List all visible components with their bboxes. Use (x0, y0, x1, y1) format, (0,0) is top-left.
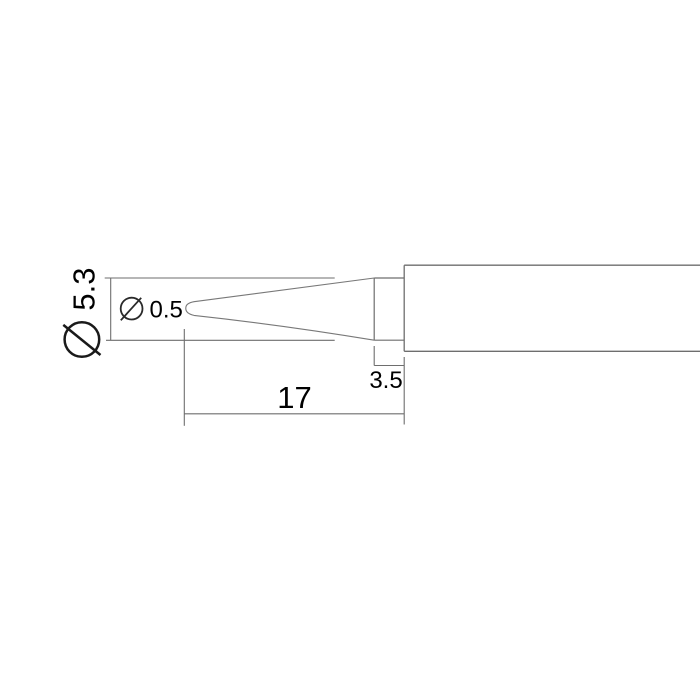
svg-text:3.5: 3.5 (369, 367, 402, 394)
svg-text:5.3: 5.3 (67, 267, 102, 310)
svg-text:17: 17 (277, 380, 311, 415)
svg-text:0.5: 0.5 (150, 297, 183, 324)
